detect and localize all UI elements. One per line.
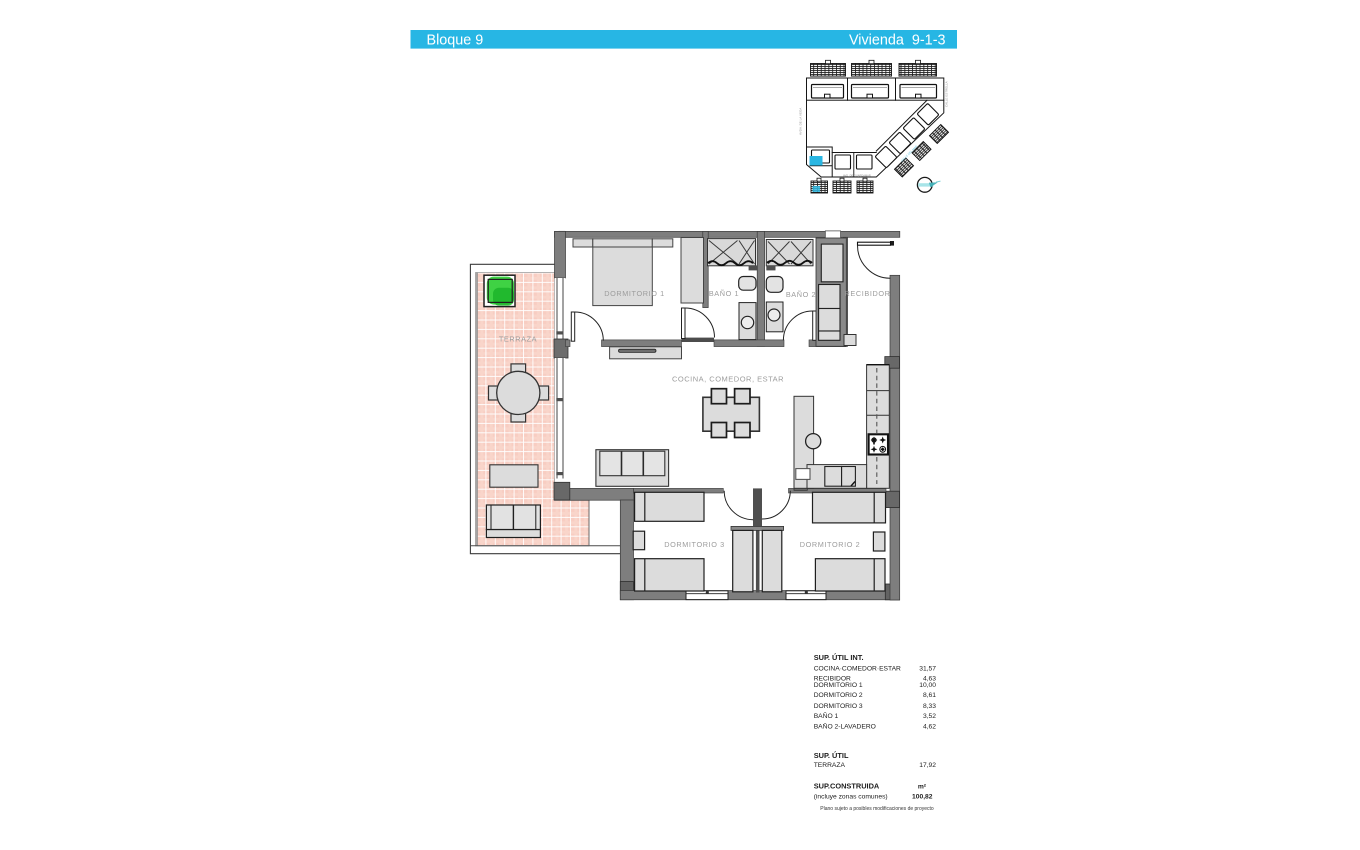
- svg-text:Bloque 9: Bloque 9: [427, 32, 484, 48]
- svg-text:CALLE ESTRELLA: CALLE ESTRELLA: [945, 81, 949, 107]
- svg-text:Vivienda 9-1-3: Vivienda 9-1-3: [849, 32, 946, 48]
- svg-text:COCINA, COMEDOR, ESTAR: COCINA, COMEDOR, ESTAR: [672, 375, 784, 384]
- svg-text:4,62: 4,62: [923, 723, 936, 730]
- svg-text:TERRAZA: TERRAZA: [814, 762, 846, 769]
- svg-text:DORMITORIO 1: DORMITORIO 1: [604, 289, 665, 298]
- svg-text:COCINA·COMEDOR·ESTAR: COCINA·COMEDOR·ESTAR: [814, 666, 901, 673]
- svg-text:SUP. ÚTIL INT.: SUP. ÚTIL INT.: [814, 653, 864, 662]
- svg-text:SUP.CONSTRUIDA: SUP.CONSTRUIDA: [814, 781, 880, 790]
- svg-text:RECIBIDOR: RECIBIDOR: [845, 289, 891, 298]
- svg-text:8,33: 8,33: [923, 703, 936, 710]
- svg-text:8,61: 8,61: [923, 692, 936, 699]
- svg-text:DORMITORIO 3: DORMITORIO 3: [664, 540, 725, 549]
- svg-text:10,00: 10,00: [919, 682, 936, 689]
- svg-text:m²: m²: [918, 783, 927, 790]
- svg-text:BAÑO 2: BAÑO 2: [786, 290, 816, 299]
- svg-text:BAÑO 1: BAÑO 1: [814, 711, 839, 720]
- svg-text:100,82: 100,82: [912, 793, 933, 800]
- svg-text:AVDA. DE LA VEGA: AVDA. DE LA VEGA: [799, 108, 803, 135]
- svg-text:DORMITORIO 2: DORMITORIO 2: [814, 692, 863, 699]
- svg-text:17,92: 17,92: [919, 762, 936, 769]
- svg-text:TERRAZA: TERRAZA: [499, 334, 537, 343]
- svg-text:DORMITORIO 3: DORMITORIO 3: [814, 703, 863, 710]
- svg-text:DORMITORIO 1: DORMITORIO 1: [814, 682, 863, 689]
- svg-text:DORMITORIO 2: DORMITORIO 2: [800, 540, 861, 549]
- svg-text:AVD. DE GUARDAMAR: AVD. DE GUARDAMAR: [843, 174, 871, 178]
- svg-text:BAÑO 1: BAÑO 1: [709, 289, 739, 298]
- svg-text:(incluye zonas comunes): (incluye zonas comunes): [814, 793, 888, 800]
- svg-text:SUP. ÚTIL: SUP. ÚTIL: [814, 751, 849, 760]
- svg-text:3,52: 3,52: [923, 713, 936, 720]
- svg-text:Plano sujeto a posibles modifi: Plano sujeto a posibles modificaciones d…: [820, 806, 934, 812]
- svg-text:31,57: 31,57: [919, 666, 936, 673]
- svg-text:BAÑO 2-LAVADERO: BAÑO 2-LAVADERO: [814, 721, 876, 730]
